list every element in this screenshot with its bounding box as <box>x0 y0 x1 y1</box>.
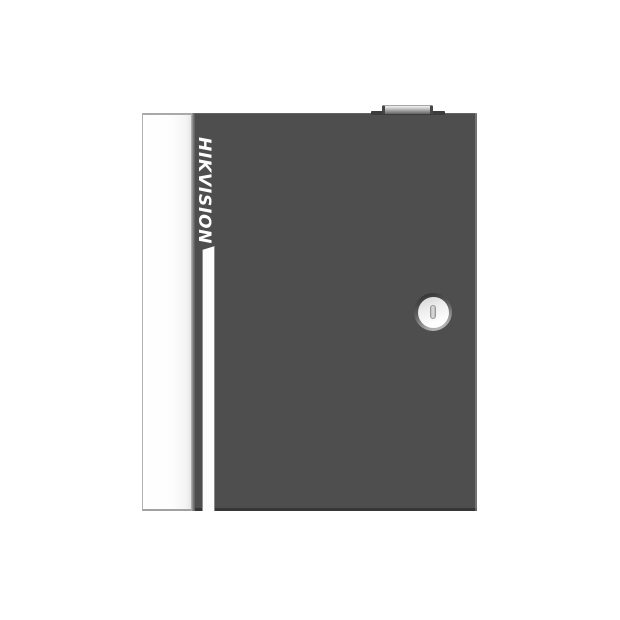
top-latch-knob <box>382 105 433 114</box>
keyhole-slot <box>430 305 436 319</box>
device-enclosure: HIKVISION <box>142 113 477 511</box>
side-panel <box>142 113 192 511</box>
accent-stripe <box>202 246 215 511</box>
product-photo-canvas: HIKVISION <box>0 0 620 620</box>
brand-logo-text: HIKVISION <box>195 137 212 244</box>
key-lock-face <box>418 297 449 328</box>
key-lock <box>414 293 452 331</box>
